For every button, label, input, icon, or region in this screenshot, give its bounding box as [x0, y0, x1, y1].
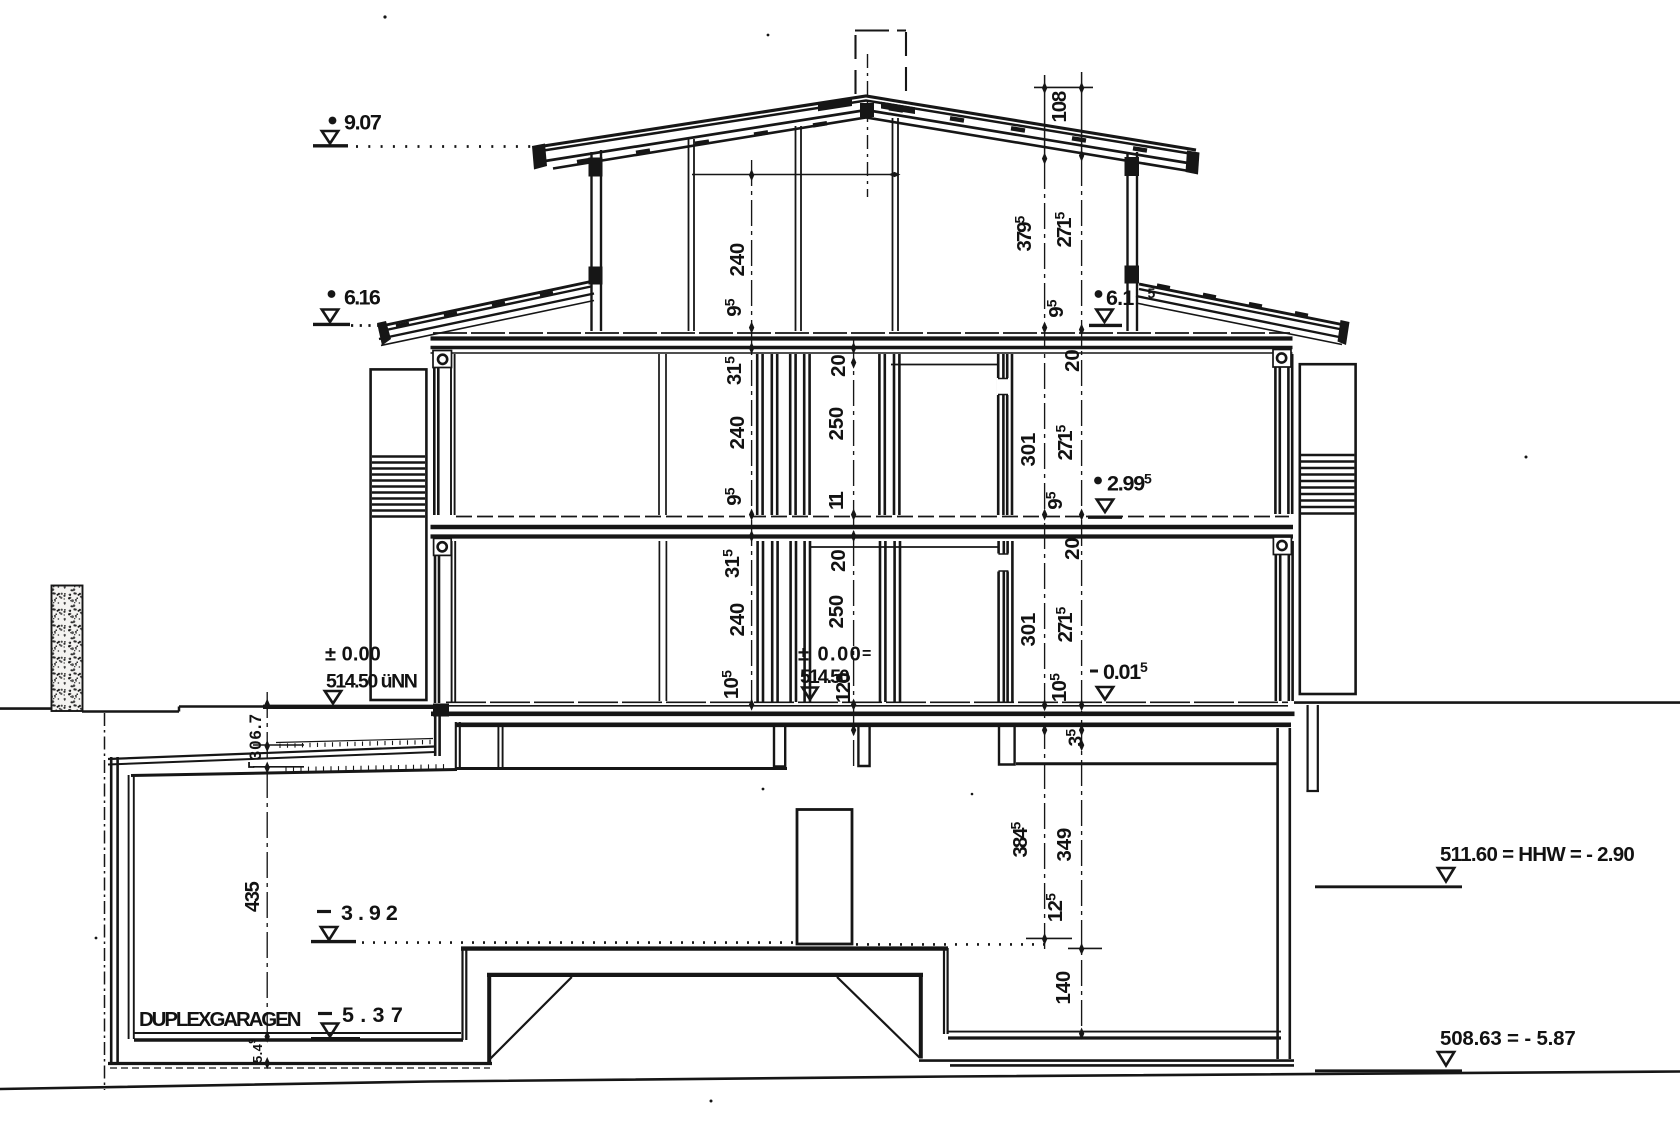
- svg-text:508.63 = - 5.87: 508.63 = - 5.87: [1440, 1027, 1575, 1050]
- svg-text:DUPLEXGARAGEN: DUPLEXGARAGEN: [139, 1008, 301, 1031]
- svg-text:435: 435: [242, 881, 264, 912]
- svg-text:250: 250: [825, 407, 848, 440]
- svg-text:20: 20: [1061, 350, 1084, 372]
- svg-text:240: 240: [726, 603, 749, 636]
- svg-text:6.16: 6.16: [344, 286, 381, 310]
- svg-text:9.07: 9.07: [344, 111, 382, 135]
- svg-text:5.37: 5.37: [342, 1003, 403, 1027]
- svg-text:250: 250: [825, 595, 848, 628]
- svg-text:301: 301: [1017, 613, 1040, 646]
- svg-text:514.50 üNN: 514.50 üNN: [326, 671, 417, 693]
- svg-text:3.92: 3.92: [341, 901, 398, 925]
- svg-text:108: 108: [1048, 91, 1071, 122]
- svg-text:301: 301: [1017, 433, 1040, 466]
- svg-text:240: 240: [726, 243, 749, 276]
- svg-text:⌜306.7: ⌜306.7: [247, 714, 265, 769]
- svg-text:=: =: [862, 646, 871, 663]
- svg-text:20: 20: [827, 355, 850, 377]
- svg-text:± 0.00: ± 0.00: [798, 644, 861, 666]
- svg-text:20: 20: [827, 550, 850, 572]
- svg-text:349: 349: [1053, 828, 1076, 861]
- svg-text:20: 20: [1061, 538, 1084, 560]
- svg-text:240: 240: [726, 416, 749, 449]
- svg-text:514.50: 514.50: [800, 666, 850, 688]
- svg-text:± 0.00: ± 0.00: [325, 644, 381, 666]
- svg-text:511.60 = HHW = - 2.90: 511.60 = HHW = - 2.90: [1440, 843, 1634, 866]
- svg-text:11: 11: [825, 492, 848, 510]
- svg-text:140: 140: [1052, 971, 1075, 1004]
